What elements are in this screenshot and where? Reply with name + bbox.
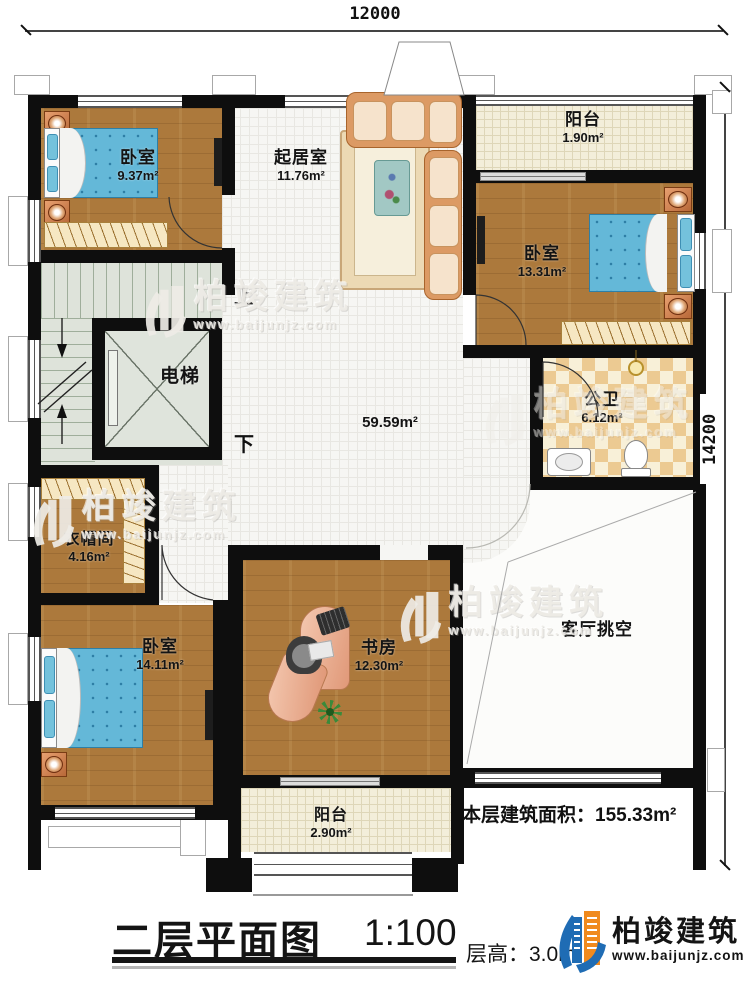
room-area: 12.30m² — [336, 658, 422, 674]
room-area: 9.37m² — [96, 168, 180, 184]
wall-balcony-bottom-left — [228, 788, 241, 864]
nightstand-icon — [664, 294, 692, 319]
sofa-cushion — [429, 101, 457, 143]
sofa-cushion — [429, 253, 459, 295]
wall-cloakroom-top — [28, 465, 159, 478]
sill-left-2 — [8, 336, 28, 422]
balcony-step-line — [253, 894, 413, 896]
floor-plan-canvas: 卧室 9.37m² 起居室 11.76m² 阳台 1.90m² 卧室 13.31… — [0, 0, 750, 989]
sink-basin — [555, 453, 583, 471]
watermark-name: 柏竣建筑 — [534, 386, 694, 424]
watermark: 柏竣建筑 www.baijunjz.com — [138, 280, 354, 342]
watermark-logo-icon — [393, 586, 443, 648]
toilet-tank — [621, 468, 651, 477]
wall-cloakroom-bottom — [41, 593, 145, 605]
nightstand-icon — [41, 752, 67, 777]
railing-balcony-bottom — [254, 852, 412, 876]
sofa-cushion — [429, 157, 459, 199]
wall-bathroom-bottom — [530, 477, 706, 490]
watermark-logo-icon — [478, 388, 528, 450]
elevator-cab — [105, 331, 209, 447]
plant-center — [326, 708, 334, 716]
lamp-icon — [668, 191, 688, 208]
brand-url: www.baijunjz.com — [612, 948, 745, 963]
bed-sheet-fold — [645, 214, 667, 292]
bed-icon-bedroom-right — [589, 214, 695, 292]
pillow-icon — [47, 166, 58, 192]
window-bedroom-bl-left — [28, 637, 41, 701]
floor-area-value: 155.33m² — [595, 805, 676, 826]
window-bedroom-bl-bottom — [55, 807, 195, 819]
pillow-icon — [47, 134, 58, 160]
stairs-left-flight — [41, 318, 95, 465]
dimension-top-value: 12000 — [330, 4, 420, 24]
watermark-logo-icon — [26, 490, 76, 552]
dimension-line-top — [25, 30, 723, 32]
tv-icon-bedroom-right — [477, 216, 485, 264]
pillow-icon — [44, 656, 55, 694]
plant-icon — [318, 700, 342, 724]
room-name: 起居室 — [258, 148, 344, 168]
watermark-url: www.baijunjz.com — [194, 318, 354, 331]
room-area: 11.76m² — [258, 168, 344, 184]
watermark-logo-icon — [138, 280, 188, 342]
pillar-balcony-left — [206, 858, 252, 892]
watermark: 柏竣建筑 www.baijunjz.com — [393, 586, 609, 648]
watermark-url: www.baijunjz.com — [534, 426, 694, 439]
wall-bedroom-tl-bottom — [28, 250, 222, 263]
sill-right-1 — [712, 90, 732, 114]
wardrobe-icon-bedroom-right — [561, 321, 691, 345]
room-name: 阳台 — [288, 806, 374, 825]
sofa-icon-right — [424, 150, 462, 300]
room-name: 卧室 — [498, 244, 586, 264]
drawing-scale: 1:100 — [364, 912, 457, 954]
room-label-balcony-bottom: 阳台 2.90m² — [288, 806, 374, 841]
sill-right-2 — [712, 229, 732, 293]
room-label-living: 起居室 11.76m² — [258, 148, 344, 184]
sofa-cushion — [391, 101, 425, 141]
floor-area-total: 本层建筑面积：155.33m² — [462, 800, 712, 827]
sliding-door-balcony-top — [480, 172, 586, 181]
room-area: 59.59m² — [348, 414, 432, 432]
lamp-icon — [48, 204, 66, 221]
sofa-cushion — [429, 205, 459, 247]
watermark-name: 柏竣建筑 — [194, 278, 354, 316]
sill-bottom-1 — [48, 826, 200, 848]
pillar-balcony-right — [412, 858, 458, 892]
room-name: 阳台 — [540, 110, 626, 130]
pillow-icon — [680, 255, 692, 288]
room-area: 2.90m² — [288, 825, 374, 841]
room-label-balcony-top: 阳台 1.90m² — [540, 110, 626, 146]
brand-logo-icon — [550, 903, 608, 979]
wall-bedroom-right-bottom — [463, 345, 706, 358]
tv-icon-bedroom-bl — [205, 690, 213, 740]
title-underline-shadow — [112, 966, 456, 969]
room-label-bedroom-right: 卧室 13.31m² — [498, 244, 586, 280]
floor-height-label: 层高： — [466, 943, 529, 966]
room-label-bedroom-bl: 卧室 14.11m² — [118, 637, 202, 673]
sliding-door-study-balcony — [280, 777, 380, 786]
sill-left-4 — [8, 633, 28, 705]
room-area: 13.31m² — [498, 264, 586, 280]
ceiling-lamp-icon — [628, 360, 644, 376]
pillow-icon — [44, 700, 55, 738]
window-stairs-left — [28, 340, 41, 418]
brand-name: 柏竣建筑 — [612, 908, 740, 950]
watermark-name: 柏竣建筑 — [449, 584, 609, 622]
room-label-hall-area: 59.59m² — [348, 414, 432, 432]
room-area: 1.90m² — [540, 130, 626, 146]
sill-right-3 — [707, 748, 725, 792]
watermark-url: www.baijunjz.com — [82, 528, 242, 541]
sill-left-1 — [8, 196, 28, 266]
elevator-door-icon — [108, 350, 118, 426]
sofa-icon-top — [346, 92, 462, 148]
window-void-bottom — [475, 772, 661, 784]
railing-balcony-top — [476, 95, 693, 106]
wall-bedroom-right-left — [463, 183, 476, 295]
wall-bedroom-bl-right — [213, 600, 228, 805]
floor-area-label: 本层建筑面积： — [462, 805, 595, 826]
coffee-table-icon — [374, 160, 410, 216]
wall-bedroom-tl-living-a — [222, 95, 235, 195]
chimney-outline — [384, 42, 464, 95]
lamp-icon — [45, 756, 63, 773]
room-label-elevator: 电梯 — [140, 366, 220, 389]
room-area: 14.11m² — [118, 657, 202, 673]
room-name: 卧室 — [96, 148, 180, 168]
pillow-icon — [680, 218, 692, 251]
sill-top-1 — [14, 75, 50, 95]
lamp-icon — [668, 298, 688, 315]
sill-top-2 — [212, 75, 256, 95]
study-doorway-opening — [380, 545, 428, 560]
wardrobe-icon-bedroom-tl — [44, 222, 168, 248]
watermark: 柏竣建筑 www.baijunjz.com — [26, 490, 242, 552]
title-underline — [112, 957, 456, 963]
watermark-name: 柏竣建筑 — [82, 488, 242, 526]
nightstand-icon — [664, 187, 692, 212]
window-bedroom-tl-left — [28, 200, 41, 262]
room-name: 电梯 — [140, 366, 220, 389]
wall-balcony-top-left — [463, 95, 476, 170]
room-label-bedroom-tl: 卧室 9.37m² — [96, 148, 180, 184]
tv-icon-bedroom-tl — [214, 138, 222, 186]
wall-study-left — [228, 560, 243, 788]
dimension-right-value: 14200 — [700, 394, 722, 484]
sill-left-3 — [8, 483, 28, 541]
stairs-down-label: 下 — [234, 428, 254, 457]
watermark-url: www.baijunjz.com — [449, 624, 609, 637]
watermark: 柏竣建筑 www.baijunjz.com — [478, 388, 694, 450]
window-bedroom-tl-top — [78, 95, 182, 108]
room-name: 卧室 — [118, 637, 202, 657]
sofa-cushion — [353, 101, 387, 141]
sink-icon — [547, 448, 591, 476]
sill-top-3 — [455, 75, 495, 95]
